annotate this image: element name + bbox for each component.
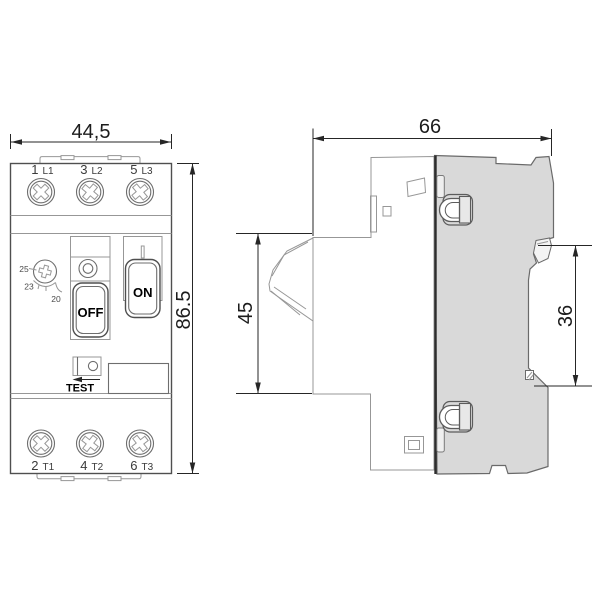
motor-starter-dimension-drawing: 1 L1 3 L2 5 L3 25 23 20 [0,0,600,600]
bottom-lip [37,474,141,481]
dim-arrowhead-icon [541,136,552,142]
terminal-number: 2 [31,458,38,473]
dimension-handle-height-value: 45 [235,302,257,324]
dim-arrowhead-icon [573,375,579,386]
dim-arrowhead-icon [313,136,324,142]
dim-arrowhead-icon [573,246,579,257]
divider-slot-top [437,176,445,198]
dim-arrowhead-icon [160,139,171,145]
dimension-rail-span-value: 36 [555,305,577,327]
dim-arrowhead-icon [190,463,196,474]
dial-mark-20: 20 [51,294,61,304]
dial-mark-25: 25 [19,264,29,274]
dimension-width-value: 44,5 [72,121,111,143]
terminal-number: 4 [80,458,87,473]
bottom-lip-tab [61,477,74,481]
terminal-number: 6 [130,458,137,473]
dim-arrowhead-icon [190,164,196,175]
top-lip-tab [61,156,74,160]
technical-drawing-canvas: 1 L1 3 L2 5 L3 25 23 20 [0,0,600,600]
top-lip-tab [108,156,121,160]
dimension-height-value: 86.5 [173,291,195,330]
bottom-lip-tab [108,477,121,481]
dial-mark-23: 23 [24,282,34,292]
on-housing-tick [141,246,144,258]
dim-arrowhead-icon [255,383,261,394]
terminal-phase: T2 [92,462,104,473]
on-button-label: ON [133,285,153,300]
side-front-housing [313,157,434,471]
dimension-height: 86.5 [173,164,199,474]
terminal-number: 3 [80,162,87,177]
toggle-lever [269,238,313,321]
terminal-phase: L2 [92,166,104,177]
terminal-phase: L1 [43,166,55,177]
din-latch-block [526,371,534,381]
terminal-phase: L3 [142,166,154,177]
front-view: 1 L1 3 L2 5 L3 25 23 20 [11,121,200,481]
dimension-depth-value: 66 [419,116,441,138]
terminal-number: 5 [130,162,137,177]
test-label: TEST [66,383,94,395]
terminal-phase: T3 [142,462,154,473]
dimension-width: 44,5 [11,121,172,149]
din-rail-hook [534,238,552,263]
dim-arrowhead-icon [255,234,261,245]
dimension-rail-span: 36 [534,246,592,387]
top-lip [40,156,140,163]
terminal-number: 1 [31,162,38,177]
off-button-label: OFF [78,305,104,320]
dim-arrowhead-icon [11,139,22,145]
terminal-phase: T1 [43,462,55,473]
side-view: 66 45 36 [235,116,592,474]
divider-slot-bottom [437,428,445,452]
